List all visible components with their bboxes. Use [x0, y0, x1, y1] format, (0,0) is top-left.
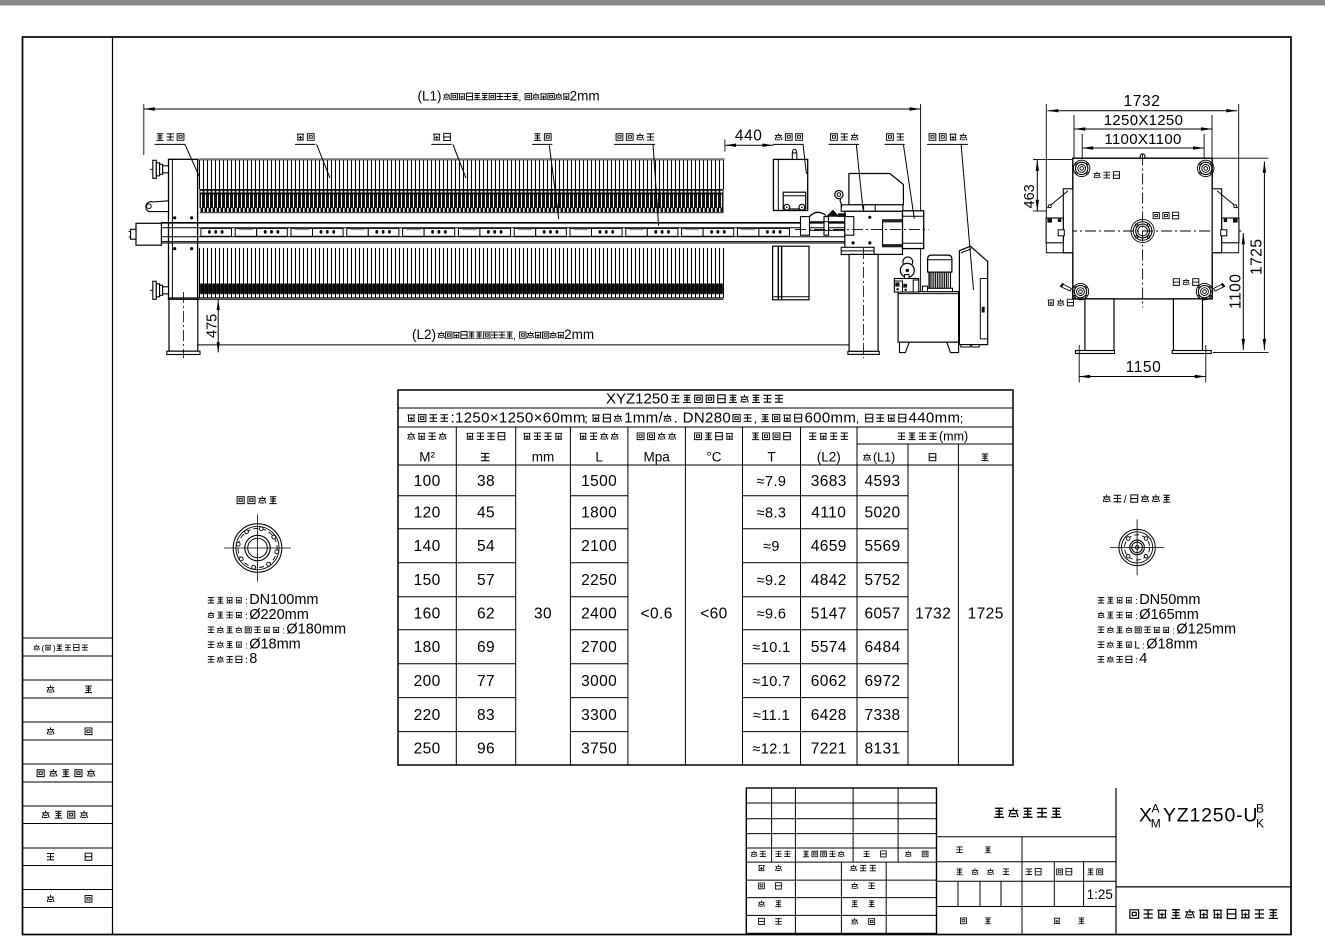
svg-text:(L1): (L1) [418, 89, 442, 104]
svg-text:7221: 7221 [811, 741, 847, 758]
svg-text:Ø180mm: Ø180mm [286, 622, 346, 638]
svg-text:250: 250 [414, 741, 441, 758]
svg-text::1250×1250×60mm: :1250×1250×60mm [451, 410, 586, 427]
svg-text:96: 96 [477, 741, 495, 758]
svg-text:1mm/: 1mm/ [624, 410, 663, 427]
svg-text::: : [1172, 626, 1175, 636]
svg-text:475: 475 [205, 314, 221, 338]
svg-text:5147: 5147 [811, 606, 847, 623]
svg-text:54: 54 [477, 538, 495, 555]
svg-text:1800: 1800 [581, 505, 617, 522]
svg-text:30: 30 [534, 606, 552, 623]
svg-text:120: 120 [414, 505, 441, 522]
svg-text:A: A [1152, 802, 1160, 816]
svg-text:K: K [1256, 817, 1264, 831]
svg-text:/: / [1124, 494, 1127, 506]
svg-text::: : [245, 655, 248, 665]
svg-text:160: 160 [414, 606, 441, 623]
svg-text:1:25: 1:25 [1087, 887, 1113, 902]
svg-text::: : [245, 640, 248, 650]
svg-text:Ø18mm: Ø18mm [1146, 636, 1198, 652]
svg-text:≈8.3: ≈8.3 [757, 506, 787, 522]
svg-text:1100X1100: 1100X1100 [1104, 131, 1181, 148]
svg-text:≈9.2: ≈9.2 [757, 573, 787, 589]
svg-text:(mm): (mm) [939, 430, 968, 444]
svg-text:4842: 4842 [811, 572, 847, 589]
svg-text:463: 463 [1022, 184, 1038, 208]
svg-text:5569: 5569 [864, 538, 900, 555]
svg-text:1732: 1732 [915, 606, 951, 623]
svg-text:100: 100 [414, 473, 441, 490]
svg-text:M²: M² [419, 450, 435, 465]
svg-text:M: M [1151, 817, 1161, 831]
svg-text::: : [1142, 640, 1145, 650]
svg-text:;: ; [960, 412, 963, 426]
svg-text:Ø220mm: Ø220mm [249, 607, 309, 623]
svg-text:8131: 8131 [864, 741, 900, 758]
svg-text::: : [1135, 655, 1138, 665]
svg-text::: : [282, 626, 285, 636]
svg-text:Ø165mm: Ø165mm [1139, 607, 1199, 623]
svg-text:,: , [513, 331, 516, 342]
svg-text:≈7.9: ≈7.9 [757, 474, 787, 490]
svg-text::: : [245, 611, 248, 621]
svg-text:≈10.1: ≈10.1 [752, 640, 790, 656]
svg-text:Ø18mm: Ø18mm [249, 636, 301, 652]
svg-text:(L2): (L2) [817, 450, 841, 465]
svg-text:L: L [595, 450, 603, 465]
svg-text:Mpa: Mpa [644, 450, 671, 465]
svg-text:440mm: 440mm [909, 410, 961, 427]
svg-text:6062: 6062 [811, 673, 847, 690]
svg-text:DN50mm: DN50mm [1139, 592, 1200, 608]
svg-text:YZ1250-U: YZ1250-U [1163, 805, 1258, 827]
svg-text:1150: 1150 [1126, 359, 1162, 376]
svg-text:5752: 5752 [864, 572, 900, 589]
svg-text:4: 4 [1139, 651, 1147, 667]
svg-text:T: T [767, 450, 775, 465]
svg-text:B: B [1256, 802, 1264, 816]
svg-text:600mm: 600mm [804, 410, 856, 427]
svg-text:77: 77 [477, 673, 495, 690]
svg-text:(L2): (L2) [412, 327, 436, 342]
svg-text:83: 83 [477, 707, 495, 724]
svg-text:,: , [754, 412, 757, 426]
svg-text:4110: 4110 [811, 505, 846, 522]
svg-text:4593: 4593 [864, 473, 900, 490]
svg-text:2250: 2250 [581, 572, 617, 589]
svg-text:. DN280: . DN280 [674, 410, 731, 427]
svg-text:57: 57 [477, 572, 495, 589]
svg-text:,: , [856, 412, 859, 426]
svg-text:<0.6: <0.6 [641, 606, 673, 623]
svg-text:2700: 2700 [581, 639, 617, 656]
svg-text:2100: 2100 [581, 538, 617, 555]
svg-text:L: L [1134, 639, 1140, 651]
svg-text:200: 200 [414, 673, 441, 690]
svg-text:6972: 6972 [864, 673, 900, 690]
svg-text:150: 150 [414, 572, 441, 589]
svg-text:62: 62 [477, 606, 495, 623]
svg-text:4659: 4659 [811, 538, 847, 555]
svg-text:Ø125mm: Ø125mm [1176, 622, 1236, 638]
svg-text:≈9: ≈9 [763, 539, 780, 555]
svg-text::: : [1135, 596, 1138, 606]
svg-text:): ) [53, 643, 56, 653]
svg-text:7338: 7338 [864, 707, 900, 724]
svg-text:2mm: 2mm [564, 327, 594, 342]
svg-text:≈10.7: ≈10.7 [752, 674, 790, 690]
svg-text:440: 440 [735, 128, 763, 145]
svg-text:45: 45 [477, 505, 495, 522]
svg-text:3000: 3000 [581, 673, 617, 690]
svg-text::: : [245, 596, 248, 606]
svg-text:1725: 1725 [968, 606, 1004, 623]
svg-text:6428: 6428 [811, 707, 847, 724]
svg-text:1250X1250: 1250X1250 [1104, 112, 1183, 129]
svg-text:(: ( [42, 643, 45, 653]
svg-text:180: 180 [414, 639, 441, 656]
svg-text:220: 220 [414, 707, 441, 724]
svg-text:1732: 1732 [1124, 93, 1161, 110]
svg-text:1500: 1500 [581, 473, 617, 490]
svg-text:≈12.1: ≈12.1 [752, 742, 790, 758]
svg-text:2mm: 2mm [570, 89, 600, 104]
svg-text:140: 140 [414, 538, 441, 555]
svg-text:°C: °C [706, 450, 721, 465]
svg-text::: : [1135, 611, 1138, 621]
svg-text:3300: 3300 [581, 707, 617, 724]
svg-text:≈9.6: ≈9.6 [757, 607, 787, 623]
svg-text:,: , [519, 93, 522, 104]
svg-text:5020: 5020 [864, 505, 900, 522]
svg-text:5574: 5574 [811, 639, 847, 656]
svg-text:DN100mm: DN100mm [249, 592, 318, 608]
svg-text:;: ; [584, 412, 587, 426]
svg-text:mm: mm [532, 450, 555, 465]
svg-text:2400: 2400 [581, 606, 617, 623]
svg-text:3683: 3683 [811, 473, 847, 490]
svg-text:<60: <60 [700, 606, 728, 623]
svg-text:1725: 1725 [1249, 239, 1266, 275]
svg-text:6484: 6484 [864, 639, 900, 656]
svg-text:(L1): (L1) [873, 451, 895, 465]
svg-text:XYZ1250: XYZ1250 [606, 391, 669, 408]
svg-text:≈11.1: ≈11.1 [753, 708, 790, 724]
svg-text:38: 38 [477, 473, 495, 490]
svg-text:8: 8 [249, 651, 257, 667]
svg-text:3750: 3750 [581, 741, 617, 758]
svg-text:6057: 6057 [864, 606, 900, 623]
svg-text:1100: 1100 [1228, 274, 1245, 309]
svg-text:69: 69 [477, 639, 495, 656]
